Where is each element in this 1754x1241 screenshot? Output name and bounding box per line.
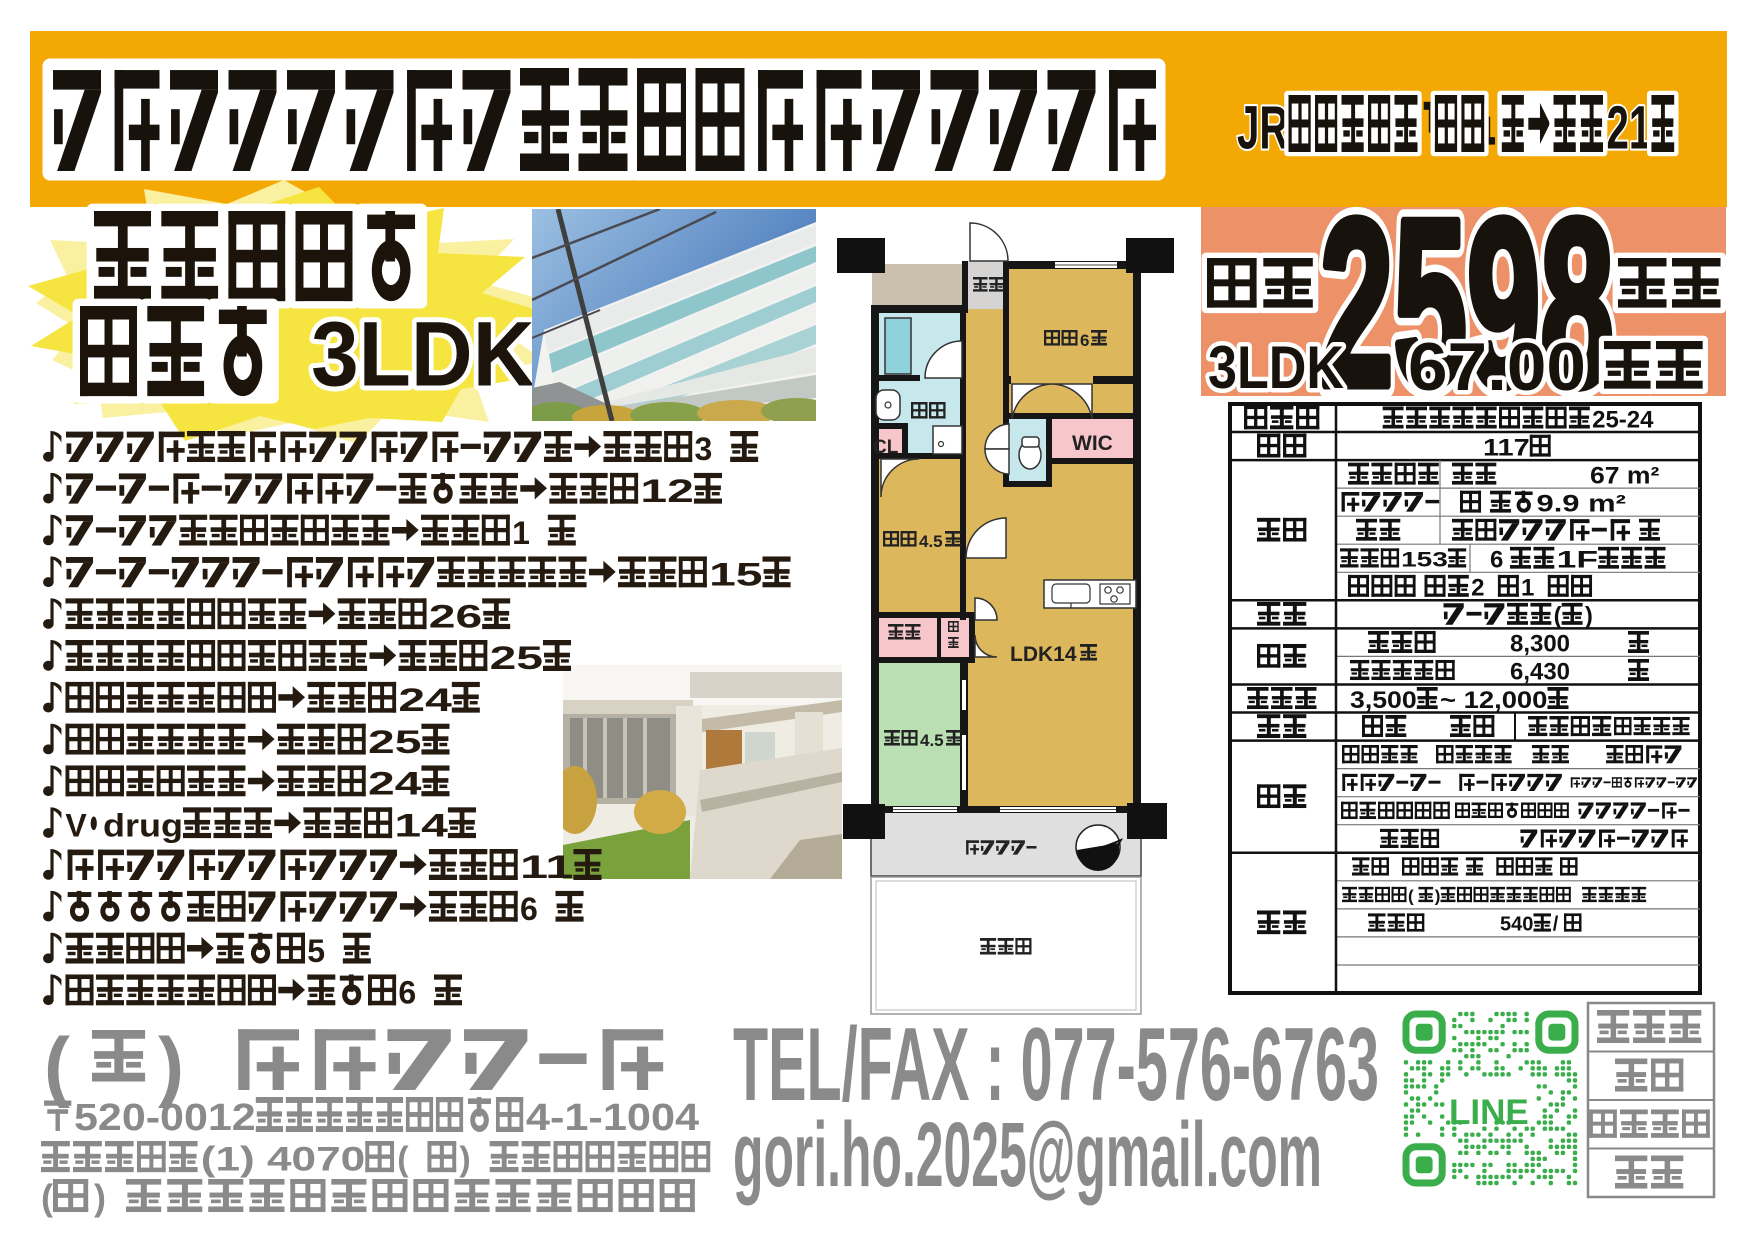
svg-text:67.00: 67.00 [1408, 329, 1586, 405]
svg-text:520-0012: 520-0012 [74, 1097, 256, 1139]
svg-text:LDK14: LDK14 [1010, 643, 1077, 666]
svg-text:gori.ho.2025@gmail.com: gori.ho.2025@gmail.com [733, 1104, 1322, 1206]
svg-text:6: 6 [398, 975, 416, 1011]
svg-text:8,300: 8,300 [1510, 631, 1570, 658]
svg-text:WIC: WIC [1072, 432, 1113, 455]
svg-text:15: 15 [709, 557, 762, 593]
svg-text:): ) [459, 1140, 470, 1178]
svg-text:153: 153 [1401, 548, 1448, 571]
svg-text:): ) [1435, 886, 1441, 905]
svg-text:): ) [1585, 603, 1593, 630]
svg-text:540: 540 [1500, 914, 1533, 936]
svg-text:V: V [65, 807, 87, 843]
svg-text:3,500: 3,500 [1350, 687, 1417, 714]
svg-text:(: ( [397, 1140, 409, 1178]
svg-text:4.5: 4.5 [920, 731, 944, 750]
svg-text:2: 2 [1471, 575, 1484, 602]
svg-text:(: ( [41, 1177, 53, 1218]
svg-text:JR: JR [1237, 94, 1289, 162]
svg-text:4-1-1004: 4-1-1004 [526, 1097, 699, 1139]
svg-text:6: 6 [1080, 331, 1089, 350]
svg-text:drug: drug [103, 807, 183, 843]
svg-text:6: 6 [1490, 547, 1503, 574]
svg-text:CL: CL [873, 437, 899, 458]
svg-text:6,430: 6,430 [1510, 659, 1570, 686]
svg-text:LINE: LINE [1449, 1093, 1529, 1132]
svg-text:14: 14 [394, 807, 448, 843]
svg-text:(: ( [1554, 603, 1562, 630]
svg-text:(1) 4070: (1) 4070 [201, 1140, 365, 1178]
svg-text:26: 26 [429, 598, 482, 634]
svg-text:4.5: 4.5 [919, 532, 943, 551]
svg-text:(: ( [44, 1021, 70, 1109]
svg-text:25-24: 25-24 [1592, 406, 1654, 433]
svg-text:3LDK: 3LDK [1208, 334, 1344, 401]
svg-text:25: 25 [490, 640, 543, 676]
svg-text:12: 12 [640, 473, 693, 509]
svg-text:~ 12,000: ~ 12,000 [1440, 687, 1547, 714]
svg-text:24: 24 [398, 682, 452, 718]
svg-text:21: 21 [1607, 94, 1652, 162]
svg-text:11: 11 [520, 849, 573, 885]
svg-text:): ) [158, 1021, 184, 1109]
svg-text:117: 117 [1483, 434, 1530, 461]
svg-text:1: 1 [512, 515, 530, 551]
svg-text:25: 25 [368, 724, 421, 760]
svg-text:67 m²: 67 m² [1590, 462, 1659, 489]
svg-text:1F: 1F [1557, 547, 1598, 574]
svg-text:3: 3 [695, 431, 713, 467]
svg-text:24: 24 [368, 766, 422, 802]
svg-text:1: 1 [1521, 575, 1534, 602]
svg-text:9.9 m²: 9.9 m² [1537, 490, 1626, 517]
svg-text:): ) [94, 1177, 106, 1218]
svg-text:3LDK: 3LDK [311, 304, 534, 406]
svg-text:5: 5 [307, 933, 325, 969]
svg-text:(: ( [1408, 886, 1414, 905]
svg-text:6: 6 [520, 891, 538, 927]
svg-text:/: / [1553, 914, 1559, 936]
